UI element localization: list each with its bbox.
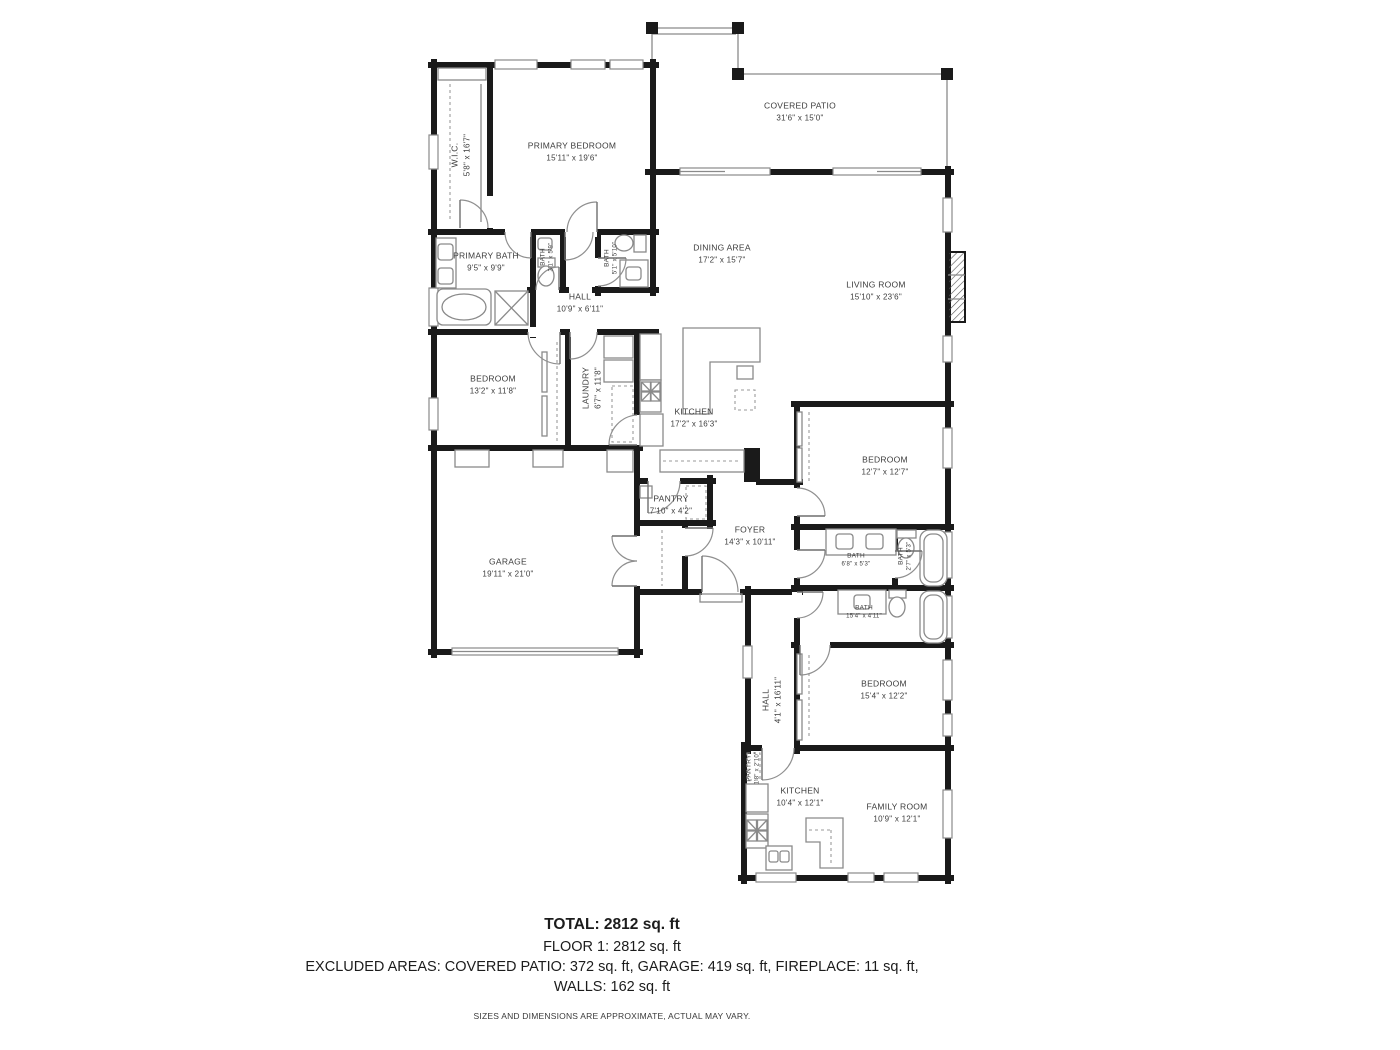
kitchen-peninsula <box>660 450 744 472</box>
dishwasher-icon <box>735 390 755 410</box>
area-summary: TOTAL: 2812 sq. ft FLOOR 1: 2812 sq. ft … <box>305 916 918 1021</box>
window <box>943 336 952 362</box>
room-name: HALL <box>557 291 604 303</box>
window <box>943 660 952 700</box>
room-dims: 15'10" x 23'6" <box>846 291 905 302</box>
closet-slider <box>797 448 802 482</box>
room-dims: 5'1" x 5'10" <box>611 242 619 275</box>
washer-icon <box>604 336 633 358</box>
room-dims: 12'7" x 12'7" <box>861 466 908 477</box>
room-label-primary-bedroom: PRIMARY BEDROOM 15'11" x 19'6" <box>528 140 616 163</box>
room-name: DINING AREA <box>693 242 751 254</box>
room-label-dining-area: DINING AREA 17'2" x 15'7" <box>693 242 751 265</box>
room-dims: 6'7" x 11'8" <box>592 367 603 409</box>
dryer-icon <box>604 360 633 382</box>
room-label-pantry-lower: PANTRY 1'8" x 2'10" <box>744 752 761 785</box>
window <box>571 60 605 69</box>
room-name: PRIMARY BATH <box>453 250 519 262</box>
room-label-bedroom-lower: BEDROOM 15'4" x 12'2" <box>860 678 907 701</box>
laundry-cabinet <box>612 386 633 442</box>
room-dims: 15'4" x 4'11" <box>846 612 882 620</box>
sink-icon <box>769 851 778 862</box>
garage-storage <box>533 450 563 467</box>
room-dims: 4'1" x 16'11" <box>772 677 783 724</box>
room-label-living-room: LIVING ROOM 15'10" x 23'6" <box>846 279 905 302</box>
front-door <box>702 556 738 592</box>
room-label-foyer: FOYER 14'3" x 10'11" <box>724 524 775 547</box>
room-label-kitchen-lower: KITCHEN 10'4" x 12'1" <box>776 785 823 808</box>
room-dims: 9'5" x 9'9" <box>453 262 519 273</box>
room-name: GARAGE <box>482 556 533 568</box>
sink-icon <box>737 366 753 379</box>
room-name: LAUNDRY <box>580 367 592 409</box>
room-name: BEDROOM <box>860 678 907 690</box>
window <box>943 790 952 838</box>
room-name: HALL <box>760 677 772 724</box>
room-dims: 31'6" x 15'0" <box>764 112 836 123</box>
window <box>429 135 438 169</box>
sink-icon <box>438 268 453 284</box>
fireplace-icon <box>948 252 965 322</box>
room-label-kitchen: KITCHEN 17'2" x 16'3" <box>670 406 717 429</box>
sink-icon <box>836 534 853 549</box>
window <box>610 60 643 69</box>
kitchen-counter <box>640 334 661 380</box>
room-name: BEDROOM <box>470 373 517 385</box>
room-label-bath-b: BATH 5'1" x 5'10" <box>602 242 619 275</box>
window <box>884 873 918 882</box>
shower-icon <box>495 291 528 325</box>
room-dims: 3'1" x 5'9" <box>547 243 555 272</box>
window <box>495 60 537 69</box>
room-label-bath-a: BATH 3'1" x 5'9" <box>538 243 555 272</box>
room-name: COVERED PATIO <box>764 100 836 112</box>
window <box>756 873 796 882</box>
sink-icon <box>780 851 789 862</box>
window <box>943 428 952 468</box>
room-dims: 7'10" x 4'2" <box>650 505 692 516</box>
kitchen-sink-cabinet <box>766 846 792 870</box>
closet-slider <box>797 412 802 446</box>
garage-storage <box>455 450 489 467</box>
room-name: KITCHEN <box>776 785 823 797</box>
room-dims: 14'3" x 10'11" <box>724 536 775 547</box>
garage-door <box>452 648 618 655</box>
room-name: PANTRY <box>744 752 753 785</box>
room-name: PANTRY <box>650 493 692 505</box>
floor-plan-page: COVERED PATIO 31'6" x 15'0" W.I.C. 5'8" … <box>0 0 1400 1050</box>
room-name: W.I.C. <box>449 134 461 176</box>
sliding-door <box>833 168 921 175</box>
disclaimer: SIZES AND DIMENSIONS ARE APPROXIMATE, AC… <box>305 1011 918 1021</box>
room-name: BATH <box>842 551 871 560</box>
room-label-bedroom-right: BEDROOM 12'7" x 12'7" <box>861 454 908 477</box>
refrigerator-icon <box>640 414 663 446</box>
closet-slider <box>797 700 802 740</box>
window <box>848 873 874 882</box>
room-label-hall-upper: HALL 10'9" x 6'11" <box>557 291 604 314</box>
room-dims: 5'8" x 16'7" <box>461 134 472 176</box>
room-name: PRIMARY BEDROOM <box>528 140 616 152</box>
room-label-bedroom-left: BEDROOM 13'2" x 11'8" <box>470 373 517 396</box>
room-dims: 10'9" x 6'11" <box>557 303 604 314</box>
room-name: KITCHEN <box>670 406 717 418</box>
patio-post <box>732 68 744 80</box>
toilet-icon <box>889 590 906 617</box>
room-dims: 1'8" x 2'10" <box>753 752 761 785</box>
closet-slider <box>542 352 547 392</box>
room-name: BATH <box>896 542 905 571</box>
bathtub-icon <box>437 289 491 325</box>
room-dims: 17'2" x 15'7" <box>693 254 751 265</box>
room-label-garage: GARAGE 19'11" x 21'0" <box>482 556 533 579</box>
walls-area: WALLS: 162 sq. ft <box>305 979 918 995</box>
sink-icon <box>438 244 453 260</box>
room-label-pantry: PANTRY 7'10" x 4'2" <box>650 493 692 516</box>
room-name: LIVING ROOM <box>846 279 905 291</box>
window <box>943 198 952 232</box>
room-label-bath-c: BATH 6'8" x 5'3" <box>842 551 871 568</box>
sink-icon <box>626 267 641 280</box>
kitchen-island <box>683 328 760 414</box>
sink-icon <box>866 534 883 549</box>
patio-post <box>646 22 658 34</box>
room-label-bath-d: BATH 2'7" x 5'3" <box>896 542 913 571</box>
kitchen-column <box>744 448 760 482</box>
room-label-covered-patio: COVERED PATIO 31'6" x 15'0" <box>764 100 836 123</box>
bathtub-icon <box>920 591 947 643</box>
patio-post <box>941 68 953 80</box>
stove-icon <box>640 380 661 412</box>
stove-icon <box>747 820 767 841</box>
room-name: BATH <box>846 603 882 612</box>
window <box>429 398 438 430</box>
window <box>743 646 752 678</box>
room-name: BATH <box>602 242 611 275</box>
room-dims: 10'4" x 12'1" <box>776 797 823 808</box>
door-arc <box>460 200 488 228</box>
window <box>943 714 952 736</box>
covered-patio-outline <box>646 22 953 170</box>
closet-slider <box>542 396 547 436</box>
room-dims: 13'2" x 11'8" <box>470 385 517 396</box>
excluded-areas: EXCLUDED AREAS: COVERED PATIO: 372 sq. f… <box>305 959 918 975</box>
total-area: TOTAL: 2812 sq. ft <box>305 916 918 934</box>
room-label-hall-lower: HALL 4'1" x 16'11" <box>760 677 783 724</box>
room-label-bath-e: BATH 15'4" x 4'11" <box>846 603 882 620</box>
room-name: FAMILY ROOM <box>866 801 927 813</box>
room-label-primary-bath: PRIMARY BATH 9'5" x 9'9" <box>453 250 519 273</box>
room-dims: 15'4" x 12'2" <box>860 690 907 701</box>
room-dims: 6'8" x 5'3" <box>842 560 871 568</box>
room-label-wic: W.I.C. 5'8" x 16'7" <box>449 134 472 176</box>
refrigerator-icon <box>746 784 768 812</box>
patio-post <box>732 22 744 34</box>
room-dims: 2'7" x 5'3" <box>905 542 913 571</box>
room-name: FOYER <box>724 524 775 536</box>
room-name: BATH <box>538 243 547 272</box>
room-name: BEDROOM <box>861 454 908 466</box>
wic-shelf <box>438 68 486 80</box>
floor-area: FLOOR 1: 2812 sq. ft <box>305 939 918 955</box>
room-dims: 17'2" x 16'3" <box>670 418 717 429</box>
garage-storage <box>607 450 633 472</box>
kitchen-l-counter <box>806 818 843 868</box>
room-label-family-room: FAMILY ROOM 10'9" x 12'1" <box>866 801 927 824</box>
room-dims: 19'11" x 21'0" <box>482 568 533 579</box>
sliding-door <box>680 168 770 175</box>
floorplan-drawing <box>0 0 1400 1050</box>
bathtub-icon <box>920 530 947 586</box>
room-dims: 10'9" x 12'1" <box>866 813 927 824</box>
room-dims: 15'11" x 19'6" <box>528 152 616 163</box>
room-label-laundry: LAUNDRY 6'7" x 11'8" <box>580 367 603 409</box>
